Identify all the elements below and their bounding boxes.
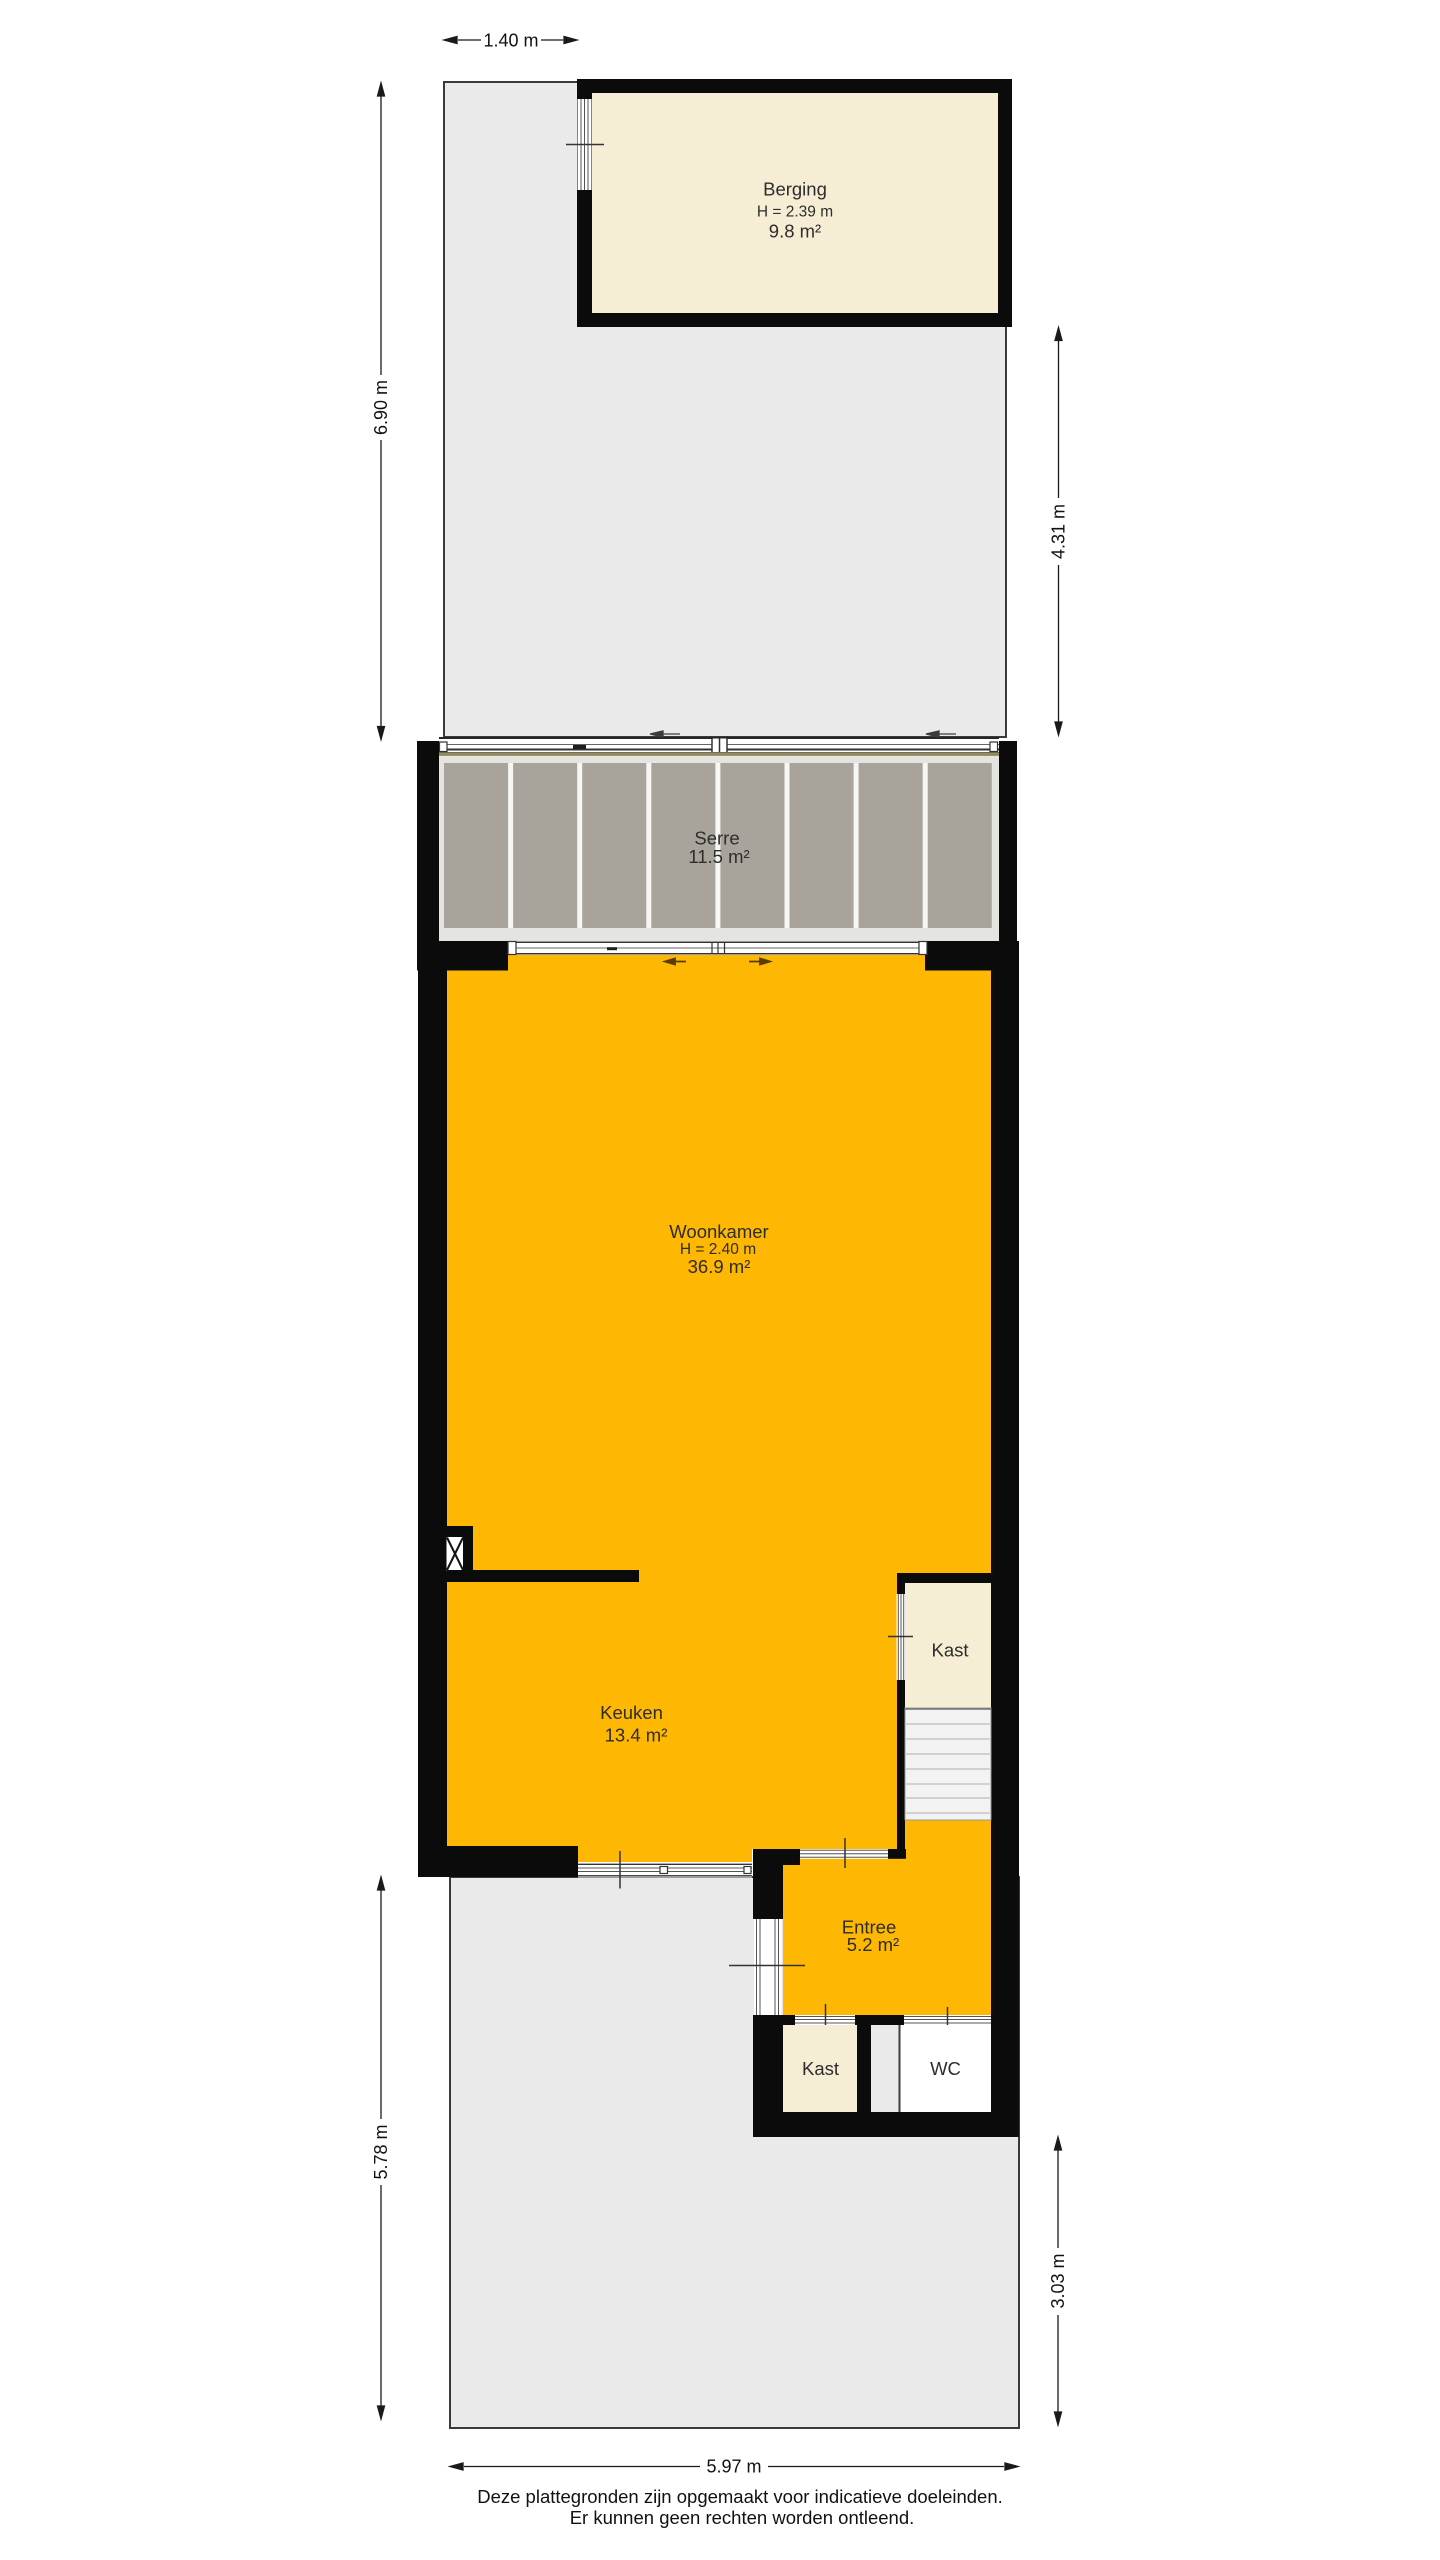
svg-text:3.03 m: 3.03 m <box>1048 2253 1068 2308</box>
svg-text:5.78 m: 5.78 m <box>371 2124 391 2179</box>
svg-text:5.2 m²: 5.2 m² <box>847 1934 899 1955</box>
svg-text:Kast: Kast <box>931 1640 968 1661</box>
svg-text:Woonkamer: Woonkamer <box>669 1221 768 1242</box>
svg-text:Deze plattegronden zijn opgema: Deze plattegronden zijn opgemaakt voor i… <box>477 2486 1003 2507</box>
svg-text:36.9 m²: 36.9 m² <box>688 1256 751 1277</box>
svg-text:Kast: Kast <box>802 2058 839 2079</box>
svg-text:6.90 m: 6.90 m <box>371 380 391 435</box>
svg-text:5.97 m: 5.97 m <box>706 2457 761 2477</box>
svg-text:13.4 m²: 13.4 m² <box>605 1725 668 1746</box>
svg-text:4.31 m: 4.31 m <box>1049 504 1069 559</box>
svg-text:9.8 m²: 9.8 m² <box>769 221 821 242</box>
svg-text:H = 2.39 m: H = 2.39 m <box>757 204 833 221</box>
svg-text:Er kunnen geen rechten worden: Er kunnen geen rechten worden ontleend. <box>570 2507 915 2528</box>
svg-text:Berging: Berging <box>763 179 827 200</box>
svg-text:Keuken: Keuken <box>600 1702 663 1723</box>
svg-text:WC: WC <box>930 2058 961 2079</box>
svg-text:11.5 m²: 11.5 m² <box>688 846 749 867</box>
svg-text:1.40 m: 1.40 m <box>483 31 538 51</box>
